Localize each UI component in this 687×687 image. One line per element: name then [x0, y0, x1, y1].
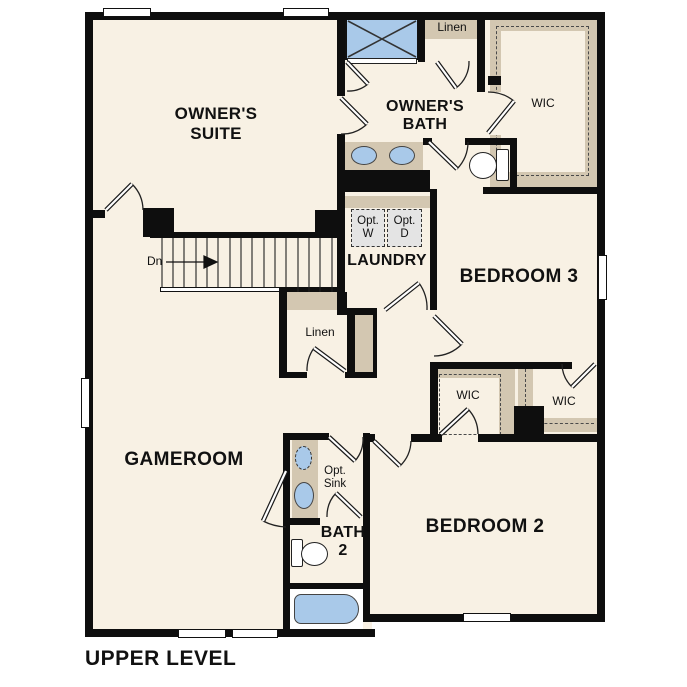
room-label-bedroom3: BEDROOM 3	[460, 266, 579, 288]
room-label-laundry: LAUNDRY	[347, 252, 427, 270]
wall-linen-hall-left	[279, 287, 287, 377]
wall-linen-hall-bottom-a	[279, 372, 307, 378]
wall-wic-owners-bottom	[483, 187, 605, 194]
bath2-line1: BATH	[321, 524, 365, 542]
wall-linen-hall-bottom-b	[345, 372, 377, 378]
owners-toilet-tank	[496, 149, 509, 181]
hall-chase	[355, 315, 373, 372]
bath2-line2: 2	[321, 542, 365, 560]
wall-bath-laundry-band	[342, 170, 430, 192]
opt-dryer-label-2: D	[400, 228, 408, 241]
window-suite-top-1	[103, 8, 151, 17]
wic-bedroom3-shelf-left-line	[525, 369, 526, 407]
wall-linen-wic-divider	[477, 12, 485, 92]
optional-washer: Opt. W	[351, 209, 385, 247]
wall-wic-stub	[488, 76, 501, 85]
wall-bedroom2-top-b	[411, 434, 442, 442]
wic-bedroom2-shelf-line	[439, 374, 501, 435]
wall-exterior-bottom-left	[85, 629, 375, 637]
opt-washer-label-2: W	[363, 228, 374, 241]
wall-bedroom2-top-c	[478, 434, 518, 442]
wall-wic-bedroom2-left	[430, 362, 438, 442]
wall-chase-left	[347, 315, 355, 372]
window-bedroom3-right	[598, 255, 607, 300]
window-bedroom2-bottom	[463, 613, 511, 622]
window-gameroom-bottom-1	[178, 629, 226, 638]
owners-toilet-bowl	[469, 152, 497, 179]
wall-exterior-top	[85, 12, 605, 20]
plan-title: UPPER LEVEL	[85, 647, 236, 671]
wall-toilet-nook-stub	[423, 138, 432, 145]
owners-bath-sink-left	[351, 146, 377, 165]
wall-suite-bath-upper	[337, 12, 345, 96]
wall-toilet-nook-top	[465, 138, 517, 145]
wall-linen-hall-top	[279, 287, 341, 292]
bath2-sink	[294, 482, 314, 509]
window-gameroom-left	[81, 378, 90, 428]
wall-linen-upper-left	[418, 12, 425, 62]
exterior-notch	[372, 622, 612, 642]
wall-exterior-right	[597, 12, 605, 622]
wall-bath2-top	[283, 433, 329, 440]
opt-sink-line2: Sink	[324, 478, 346, 491]
wall-bath2-vanity-sep	[290, 518, 320, 525]
room-label-wic-bedroom2: WIC	[456, 388, 479, 402]
wall-suite-stub	[85, 210, 105, 218]
room-label-bedroom2: BEDROOM 2	[426, 516, 545, 538]
room-label-bath2: BATH 2	[321, 524, 365, 560]
optional-sink-label: Opt. Sink	[324, 465, 346, 491]
room-label-linen-upper: Linen	[437, 20, 466, 34]
wall-wic-center-block	[514, 406, 544, 436]
opt-washer-label-1: Opt.	[357, 215, 379, 228]
owners-bath-line2: BATH	[386, 116, 464, 134]
wic-owners-door-opening	[483, 92, 501, 135]
linen-hall-shelf	[287, 292, 339, 310]
wall-linen-hall-right	[339, 292, 347, 315]
bath2-optional-sink	[295, 446, 312, 470]
room-label-owners-suite: OWNER'S SUITE	[175, 104, 258, 144]
wall-bath2-tub-sep	[288, 583, 365, 589]
floor-plan: Opt. W Opt. D	[0, 0, 687, 687]
optional-dryer: Opt. D	[387, 209, 422, 247]
owners-bath-sink-right	[389, 146, 415, 165]
wall-laundry-bedroom3	[430, 189, 437, 310]
wall-stair-rail	[150, 232, 340, 238]
owners-bath-line1: OWNER'S	[386, 98, 464, 116]
shower	[345, 18, 419, 60]
laundry-shelf	[345, 196, 430, 208]
opt-dryer-label-1: Opt.	[394, 215, 416, 228]
wall-toilet-nook-right	[510, 145, 517, 187]
bathtub	[294, 594, 359, 624]
wall-bath2-left	[283, 433, 290, 637]
room-label-wic-owners: WIC	[531, 96, 554, 110]
stair-down-label: Dn	[147, 254, 162, 268]
owners-suite-line2: SUITE	[175, 124, 258, 144]
room-label-wic-bedroom3: WIC	[552, 394, 575, 408]
room-label-linen-hall: Linen	[305, 325, 334, 339]
room-label-gameroom: GAMEROOM	[124, 449, 243, 471]
shower-door-track	[347, 58, 417, 64]
window-suite-top-2	[283, 8, 329, 17]
wall-bedroom3-bottom	[430, 362, 572, 369]
owners-suite-line1: OWNER'S	[175, 104, 258, 124]
wall-chase-right	[373, 315, 377, 372]
room-label-owners-bath: OWNER'S BATH	[386, 98, 464, 134]
stair-handrail	[160, 287, 280, 292]
wall-exterior-left	[85, 12, 93, 637]
window-gameroom-bottom-2	[232, 629, 278, 638]
opt-sink-line1: Opt.	[324, 465, 346, 478]
